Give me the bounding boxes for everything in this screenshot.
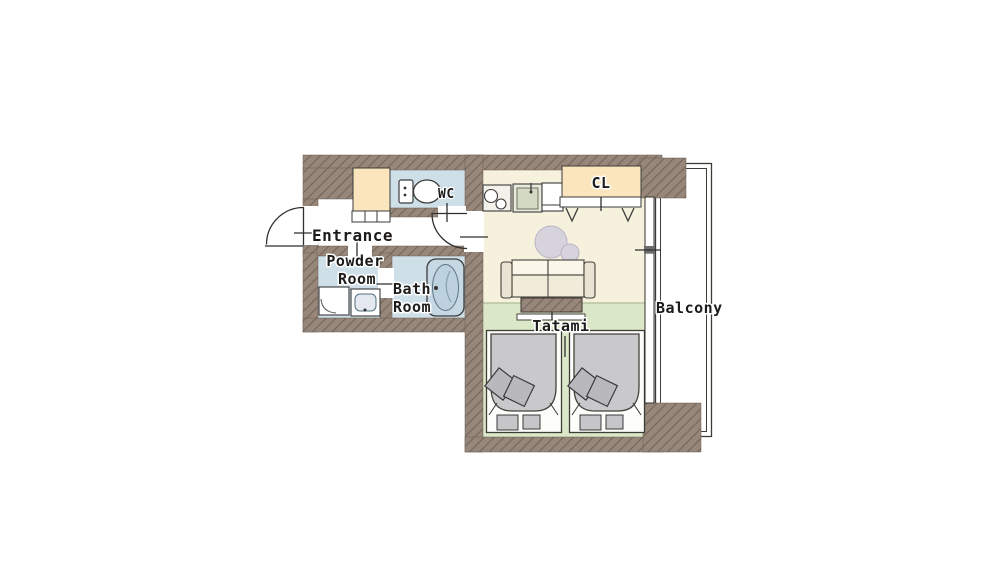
label-wc: WC xyxy=(438,187,455,202)
floor-plan-drawing: Entrance Powder Room Bath Room WC CL Tat… xyxy=(0,0,1000,563)
label-bath-room-1: Bath xyxy=(393,280,431,298)
shoe-cabinet-icon xyxy=(353,168,390,211)
sliding-window-icon xyxy=(644,197,655,403)
door-swing-icon xyxy=(265,207,304,246)
label-powder-room-2: Room xyxy=(338,270,376,288)
single-bed-icon xyxy=(568,331,645,433)
kitchen-stove-icon xyxy=(483,185,511,211)
label-balcony: Balcony xyxy=(656,299,723,317)
wc-door-opening xyxy=(438,206,466,219)
label-cl: CL xyxy=(591,174,610,192)
toilet-icon xyxy=(399,180,441,203)
label-tatami: Tatami xyxy=(532,317,589,335)
floor-plan-page: Entrance Powder Room Bath Room WC CL Tat… xyxy=(0,0,1000,563)
vanity-sink-icon xyxy=(351,289,380,316)
living-door-opening xyxy=(464,211,484,252)
shoe-cabinet-lower xyxy=(352,211,390,222)
sofa-icon xyxy=(501,260,595,298)
round-pouf-icon xyxy=(561,244,579,262)
single-bed-icon xyxy=(485,331,562,433)
label-bath-room-2: Room xyxy=(393,298,431,316)
kitchen-sink-icon xyxy=(513,183,542,212)
label-powder-room-1: Powder xyxy=(326,252,383,270)
label-entrance: Entrance xyxy=(312,226,393,245)
bathtub-icon xyxy=(427,259,464,316)
washer-icon xyxy=(319,287,349,315)
